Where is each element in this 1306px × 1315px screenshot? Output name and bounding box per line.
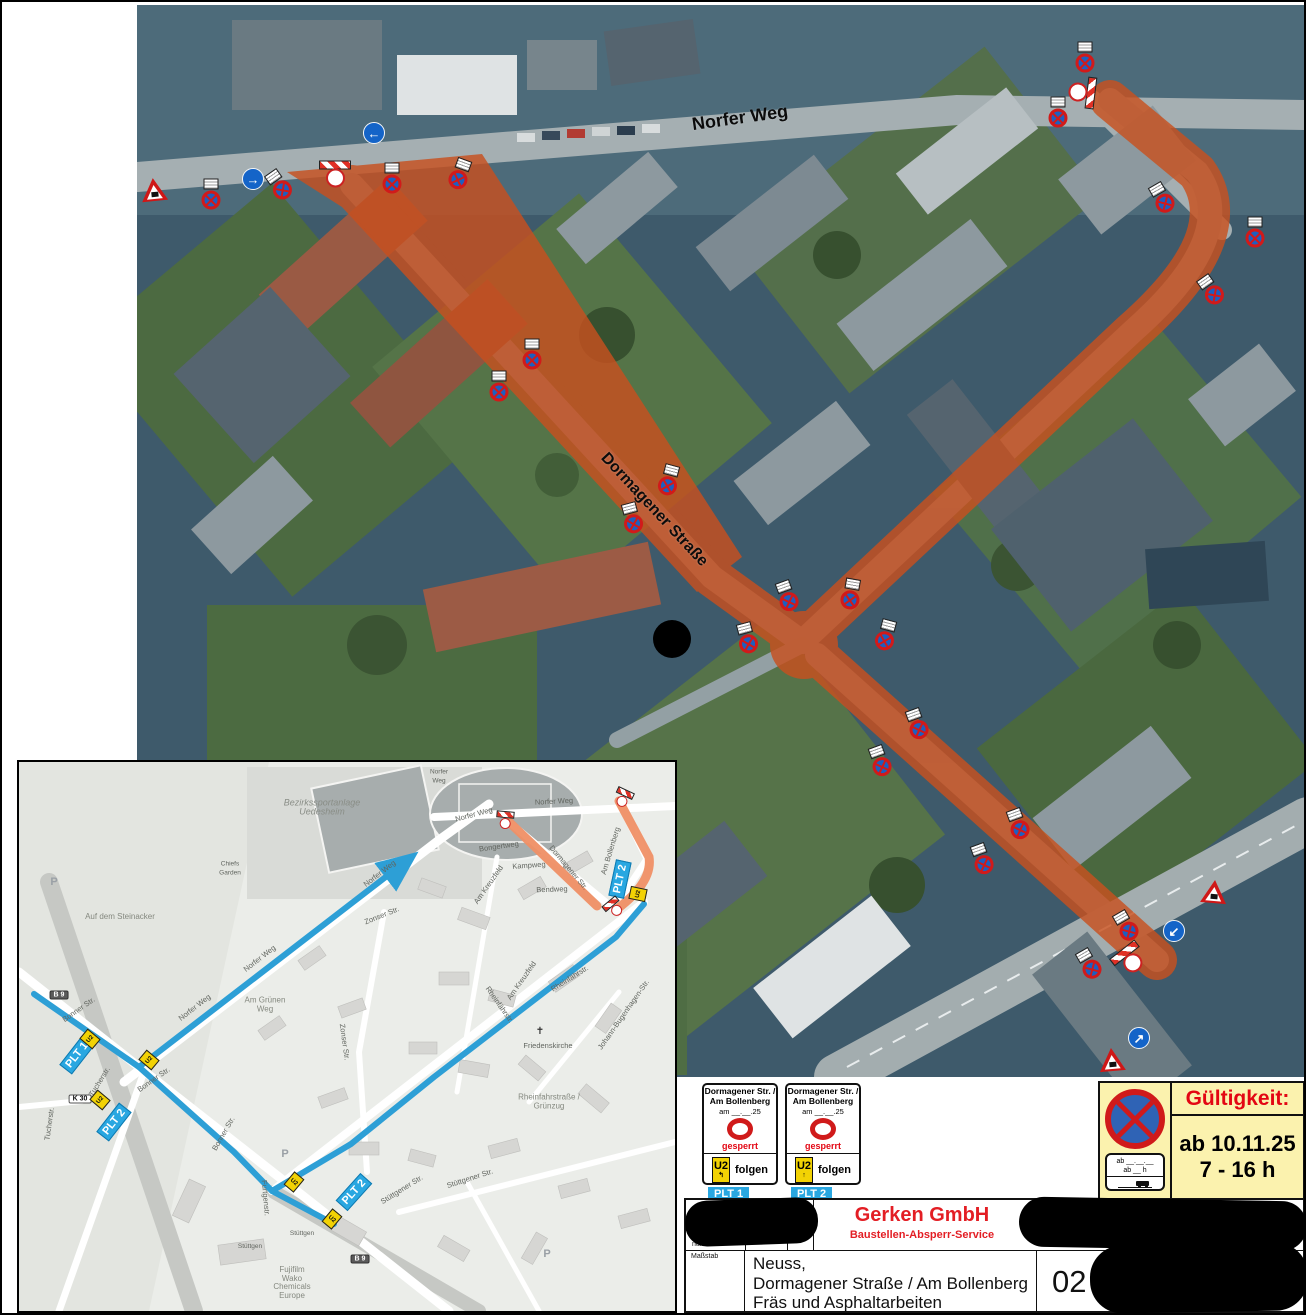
straight-arrow-icon: ↑: [802, 1172, 806, 1179]
validity-dates: ab 10.11.25 7 - 16 h: [1172, 1116, 1303, 1198]
traffic-plan-page: Norfer WegDormagener Straße→←↙↗Bezirkssp…: [0, 0, 1306, 1315]
inset-map: [17, 760, 677, 1313]
plan-street: Dormagener Straße / Am Bollenberg: [753, 1274, 1028, 1294]
panel-status: gesperrt: [722, 1141, 758, 1151]
road-closed-sign-icon: [727, 1118, 753, 1140]
closure-sign-panel-plt1: Dormagener Str. / Am Bollenberg am __.__…: [702, 1083, 778, 1185]
panel-street-line2: Am Bollenberg: [710, 1097, 770, 1107]
plan-city: Neuss,: [753, 1254, 1028, 1274]
redaction-blob: [1089, 1242, 1306, 1314]
detour-row: U2 ↑ folgen: [787, 1153, 859, 1183]
validity-hours: 7 - 16 h: [1200, 1157, 1276, 1183]
plan-title: Neuss, Dormagener Straße / Am Bollenberg…: [753, 1254, 1028, 1313]
company-name: Gerken GmbH: [816, 1204, 1028, 1227]
panel-follow: folgen: [735, 1164, 768, 1176]
validity-block: ab __.__.__ ab __ h Gültigkeit: ab 10.11…: [1098, 1081, 1305, 1200]
detour-row: U2 ↰ folgen: [704, 1153, 776, 1183]
plan-work: Fräs und Asphaltarbeiten: [753, 1293, 1028, 1313]
u2-detour-sign-icon: U2 ↑: [795, 1157, 813, 1183]
panel-date: am __.__.25: [719, 1107, 761, 1116]
plate-line2: ab __ h: [1107, 1166, 1163, 1175]
road-closed-sign-icon: [810, 1118, 836, 1140]
u2-detour-sign-icon: U2 ↰: [712, 1157, 730, 1183]
validity-text-column: Gültigkeit: ab 10.11.25 7 - 16 h: [1172, 1083, 1303, 1198]
u2-label: U2: [714, 1161, 728, 1172]
plan-number: 02: [1052, 1264, 1086, 1300]
no-stopping-column: ab __.__.__ ab __ h: [1100, 1083, 1172, 1198]
validity-start-date: ab 10.11.25: [1179, 1131, 1295, 1157]
panel-date: am __.__.25: [802, 1107, 844, 1116]
closure-sign-panel-plt2: Dormagener Str. / Am Bollenberg am __.__…: [785, 1083, 861, 1185]
turn-left-arrow-icon: ↰: [718, 1172, 724, 1179]
inset-map-graphic: [19, 762, 675, 1311]
field-label-massstab: Maßstab: [691, 1253, 718, 1260]
plate-line1: ab __.__.__: [1107, 1157, 1163, 1166]
u2-label: U2: [797, 1161, 811, 1172]
panel-follow: folgen: [818, 1164, 851, 1176]
redaction-blob: [684, 1197, 819, 1248]
panel-status: gesperrt: [805, 1141, 841, 1151]
company-dept: Baustellen-Absperr-Service: [816, 1229, 1028, 1241]
validity-title: Gültigkeit:: [1172, 1083, 1303, 1116]
tow-away-row: [1107, 1176, 1163, 1188]
panel-street-line2: Am Bollenberg: [793, 1097, 853, 1107]
title-block: Gerken GmbH Baustellen-Absperr-Service I…: [684, 1198, 1305, 1313]
tow-away-icon: [1118, 1178, 1152, 1188]
validity-plate: ab __.__.__ ab __ h: [1105, 1153, 1165, 1191]
no-stopping-sign-icon: [1105, 1089, 1165, 1149]
